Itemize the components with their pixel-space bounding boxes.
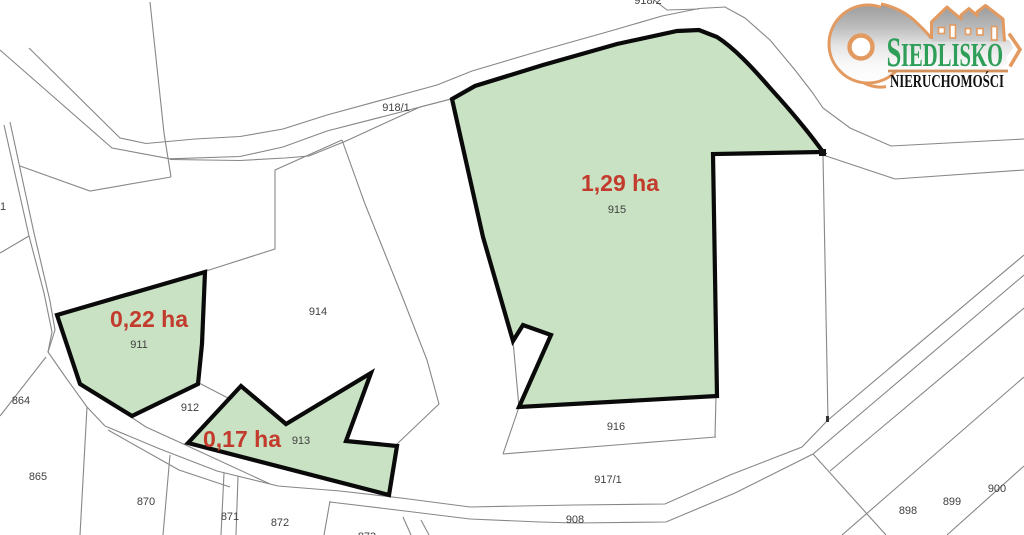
svg-text:IEDLISKO: IEDLISKO xyxy=(901,37,1003,74)
svg-text:870: 870 xyxy=(137,496,155,508)
svg-text:916: 916 xyxy=(607,421,625,433)
svg-text:914: 914 xyxy=(309,306,327,318)
svg-text:865: 865 xyxy=(29,471,47,483)
svg-text:864: 864 xyxy=(12,395,30,407)
svg-text:872: 872 xyxy=(271,517,289,529)
svg-text:912: 912 xyxy=(181,402,199,414)
svg-text:900: 900 xyxy=(988,483,1006,495)
svg-text:898: 898 xyxy=(899,505,917,517)
svg-text:0,17 ha: 0,17 ha xyxy=(203,426,281,452)
svg-text:871: 871 xyxy=(221,511,239,523)
svg-text:873: 873 xyxy=(358,531,376,535)
svg-text:908: 908 xyxy=(566,514,584,526)
svg-text:S: S xyxy=(887,28,902,76)
svg-text:918/1: 918/1 xyxy=(382,102,410,114)
svg-text:917/1: 917/1 xyxy=(594,474,622,486)
svg-text:1,29 ha: 1,29 ha xyxy=(581,170,659,196)
svg-text:915: 915 xyxy=(608,204,626,216)
svg-text:NIERUCHOMOŚCI: NIERUCHOMOŚCI xyxy=(890,70,1004,92)
svg-text:918/2: 918/2 xyxy=(634,0,662,7)
svg-text:1: 1 xyxy=(0,201,6,213)
svg-text:911: 911 xyxy=(130,339,148,351)
svg-text:0,22 ha: 0,22 ha xyxy=(110,306,188,332)
svg-text:899: 899 xyxy=(943,496,961,508)
svg-text:913: 913 xyxy=(292,435,310,447)
